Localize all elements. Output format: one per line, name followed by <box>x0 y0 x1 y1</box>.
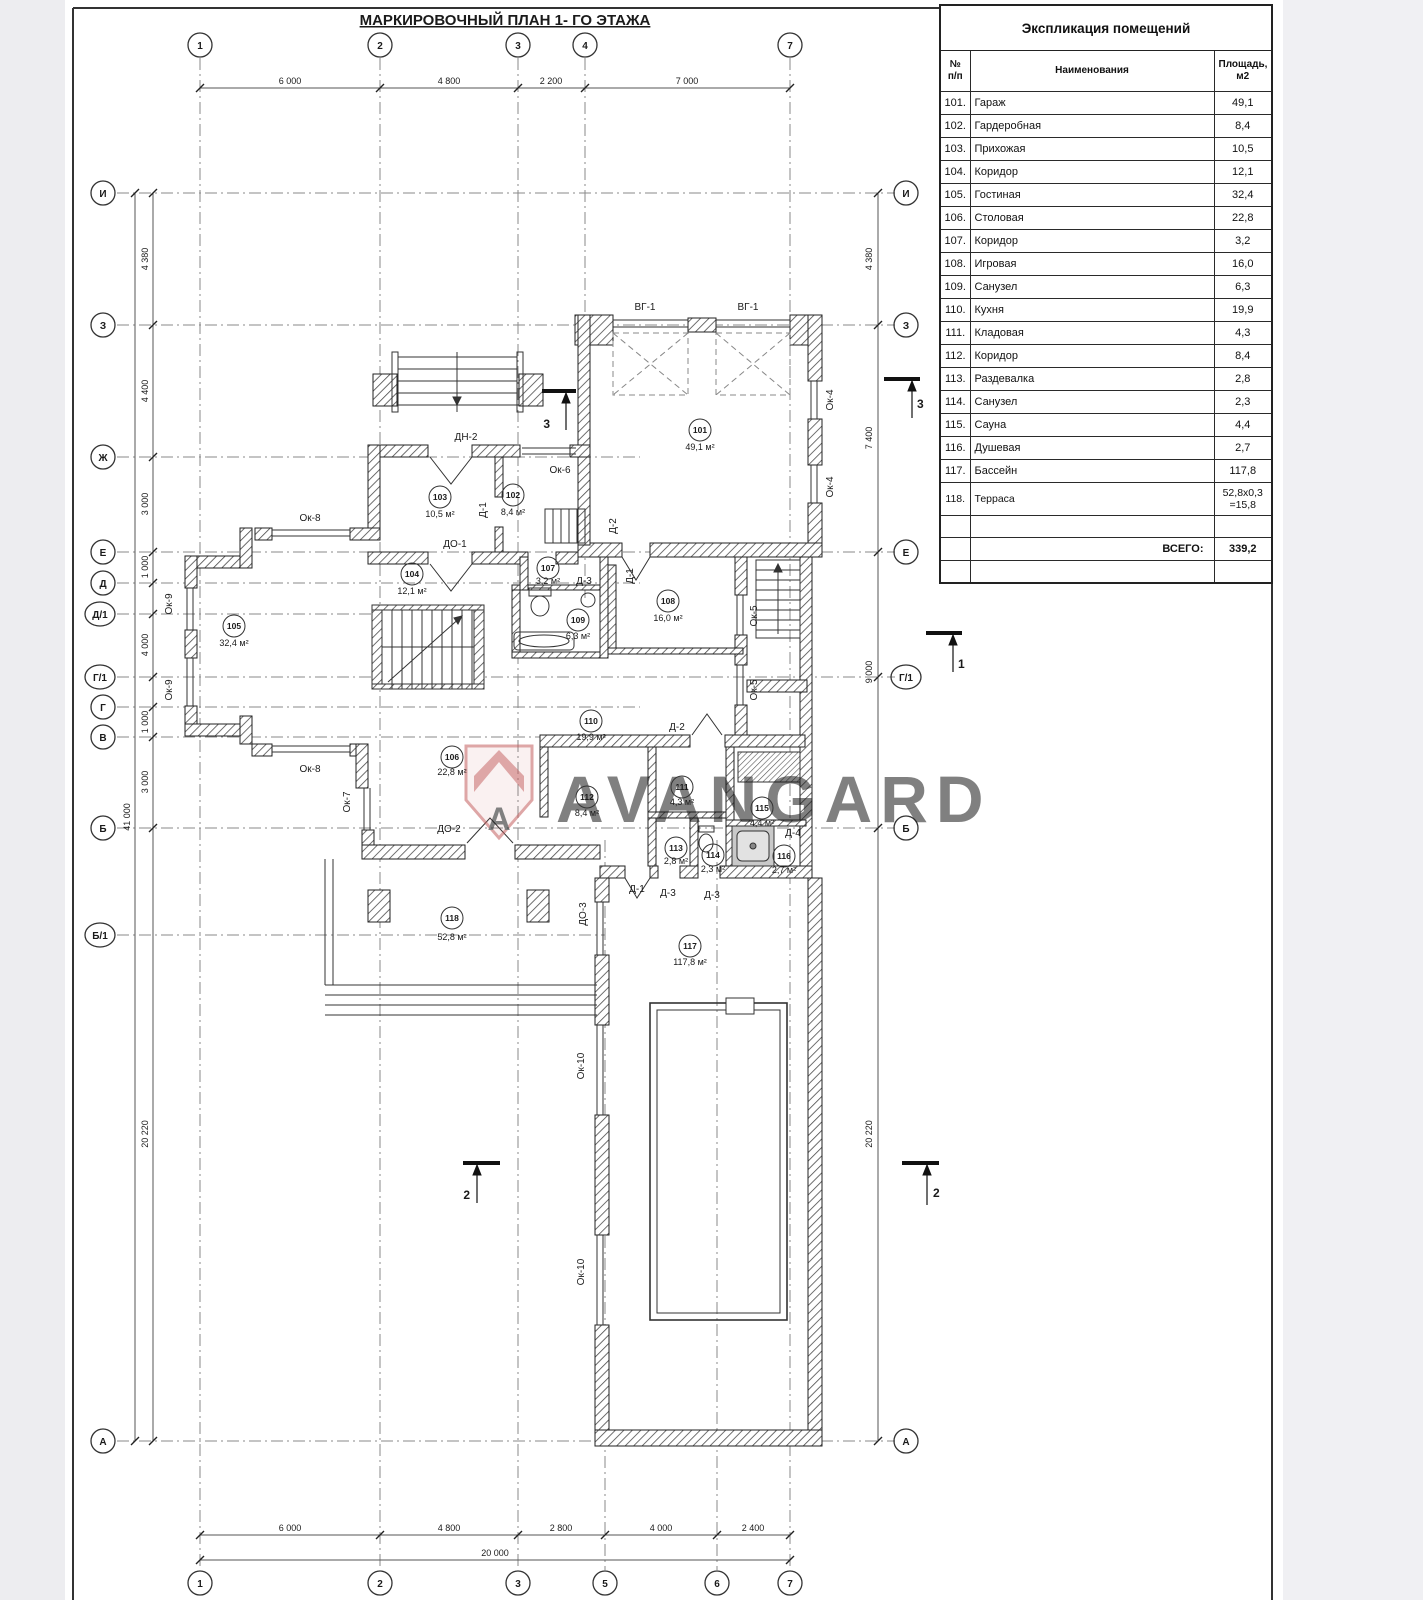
table-row: 111.Кладовая4,3 <box>940 322 1272 345</box>
label-door-d2-1: Д-2 <box>608 518 619 534</box>
dim-left-4: 1 000 <box>140 556 150 579</box>
table-row: 103.Прихожая10,5 <box>940 138 1272 161</box>
room-115-area: 4,4 м² <box>750 818 774 828</box>
axis-right-i: И <box>902 189 909 200</box>
label-door-d1-3: Д-1 <box>629 884 645 895</box>
table-row: 114.Санузел2,3 <box>940 391 1272 414</box>
table-row: 109.Санузел6,3 <box>940 276 1272 299</box>
room-104-area: 12,1 м² <box>397 586 426 596</box>
table-row: 110.Кухня19,9 <box>940 299 1272 322</box>
label-door-d3-3: Д-3 <box>704 890 720 901</box>
label-window-ok6: Ок-6 <box>549 465 570 476</box>
label-window-ok8-1: Ок-8 <box>299 513 320 524</box>
room-108-area: 16,0 м² <box>653 613 682 623</box>
table-row: 115.Сауна4,4 <box>940 414 1272 437</box>
label-window-ok4-2: Ок-4 <box>825 476 836 497</box>
axis-left-e: Е <box>100 548 107 559</box>
label-door-d3-1: Д-3 <box>576 576 592 587</box>
dim-left-2: 4 400 <box>140 380 150 403</box>
room-118-num: 118 <box>445 913 459 923</box>
dim-top-4: 7 000 <box>676 76 699 86</box>
axis-left-zh: Ж <box>97 453 108 464</box>
entry-porch-steps <box>392 352 523 412</box>
room-108-num: 108 <box>661 596 675 606</box>
axis-right-g1: Г/1 <box>899 673 913 684</box>
axis-left-i: И <box>99 189 106 200</box>
label-door-d3-2: Д-3 <box>660 888 676 899</box>
dim-bottom-1: 6 000 <box>279 1523 302 1533</box>
table-row: 117.Бассейн117,8 <box>940 460 1272 483</box>
svg-text:2: 2 <box>463 1188 470 1202</box>
room-103-area: 10,5 м² <box>425 509 454 519</box>
dim-left-1: 4 380 <box>140 248 150 271</box>
label-door-d1-1: Д-1 <box>478 502 489 518</box>
garage-door-symbols <box>613 333 790 395</box>
table-row: 108.Игровая16,0 <box>940 253 1272 276</box>
col-header-name: Наименования <box>970 51 1214 92</box>
label-door-d4: Д-4 <box>785 828 801 839</box>
room-106-area: 22,8 м² <box>437 767 466 777</box>
dim-left-total: 41 000 <box>122 803 132 831</box>
axis-right-a: А <box>902 1437 909 1448</box>
svg-text:3: 3 <box>543 417 550 431</box>
room-112-num: 112 <box>580 792 594 802</box>
svg-text:2: 2 <box>933 1186 940 1200</box>
room-111-area: 4,3 м² <box>670 797 694 807</box>
room-105-num: 105 <box>227 621 241 631</box>
main-staircase <box>372 605 484 689</box>
label-window-ok8-2: Ок-8 <box>299 764 320 775</box>
dim-bottom-4: 4 000 <box>650 1523 673 1533</box>
section-3-right: 3 <box>884 379 924 418</box>
table-row: 116.Душевая2,7 <box>940 437 1272 460</box>
axis-left-g: Г <box>100 703 106 714</box>
room-118-area: 52,8 м² <box>437 932 466 942</box>
label-door-do3: ДО-3 <box>578 902 589 926</box>
room-115-num: 115 <box>755 803 769 813</box>
pool <box>650 998 787 1320</box>
room-104-num: 104 <box>405 569 419 579</box>
total-value: 339,2 <box>1214 538 1272 561</box>
axis-bot-3: 3 <box>515 1579 521 1590</box>
dim-bottom-3: 2 800 <box>550 1523 573 1533</box>
walls-layer <box>185 315 822 1446</box>
table-row: 102.Гардеробная8,4 <box>940 115 1272 138</box>
room-116-area: 2,7 м² <box>772 865 796 875</box>
label-window-ok4-1: Ок-4 <box>825 389 836 410</box>
watermark-logo-letter: А <box>487 801 510 837</box>
axis-top-7: 7 <box>787 41 793 52</box>
axis-bot-6: 6 <box>714 1579 720 1590</box>
col-header-num: № п/п <box>940 51 970 92</box>
label-door-dn2: ДН-2 <box>455 432 478 443</box>
label-garage-door-2: ВГ-1 <box>738 302 759 313</box>
table-row: 112.Коридор8,4 <box>940 345 1272 368</box>
axis-left-z: З <box>100 321 106 332</box>
dim-bottom-total: 20 000 <box>481 1548 509 1558</box>
room-101-num: 101 <box>693 425 707 435</box>
dim-right-3: 9 000 <box>864 661 874 684</box>
room-113-num: 113 <box>669 843 683 853</box>
room-110-area: 19,9 м² <box>576 732 605 742</box>
axis-left-g1: Г/1 <box>93 673 107 684</box>
label-window-ok5-2: Ок-5 <box>749 679 760 700</box>
room-114-num: 114 <box>706 850 720 860</box>
label-window-ok10-1: Ок-10 <box>576 1052 587 1079</box>
axis-bot-5: 5 <box>602 1579 608 1590</box>
dim-top-1: 6 000 <box>279 76 302 86</box>
table-title: Экспликация помещений <box>940 5 1272 51</box>
room-112-area: 8,4 м² <box>575 808 599 818</box>
label-window-ok9-1: Ок-9 <box>164 593 175 614</box>
axis-bot-2: 2 <box>377 1579 383 1590</box>
dim-left-8: 20 220 <box>140 1120 150 1148</box>
plan-title: МАРКИРОВОЧНЫЙ ПЛАН 1- ГО ЭТАЖА <box>360 11 651 29</box>
room-103-num: 103 <box>433 492 447 502</box>
dim-left-6: 1 000 <box>140 711 150 734</box>
label-door-d2-2: Д-2 <box>669 722 685 733</box>
axis-left-d: Д <box>99 579 106 590</box>
dim-bottom-2: 4 800 <box>438 1523 461 1533</box>
table-total-row: ВСЕГО: 339,2 <box>940 538 1272 561</box>
table-row: 101.Гараж49,1 <box>940 92 1272 115</box>
label-window-ok7: Ок-7 <box>342 791 353 812</box>
explication-table: Экспликация помещений № п/п Наименования… <box>939 4 1273 584</box>
dim-right-4: 20 220 <box>864 1120 874 1148</box>
room-109-area: 6,3 м² <box>566 631 590 641</box>
axis-right-e: Е <box>903 548 910 559</box>
label-window-ok10-2: Ок-10 <box>576 1258 587 1285</box>
label-window-ok9-2: Ок-9 <box>164 679 175 700</box>
dim-left-5: 4 000 <box>140 634 150 657</box>
room-114-area: 2,3 м² <box>701 864 725 874</box>
dim-right-1: 4 380 <box>864 248 874 271</box>
table-row: 118.Терраса52,8х0,3 =15,8 <box>940 483 1272 516</box>
label-door-do2: ДО-2 <box>437 824 461 835</box>
section-3-top: 3 <box>542 391 576 431</box>
room-117-num: 117 <box>683 941 697 951</box>
room-markers: 101 102 103 104 105 106 107 108 109 110 … <box>219 419 796 967</box>
axis-bot-7: 7 <box>787 1579 793 1590</box>
room-102-area: 8,4 м² <box>501 507 525 517</box>
svg-text:1: 1 <box>958 657 965 671</box>
right-staircase <box>756 560 800 638</box>
room-101-area: 49,1 м² <box>685 442 714 452</box>
table-row: 104.Коридор12,1 <box>940 161 1272 184</box>
table-row: 113.Раздевалка2,8 <box>940 368 1272 391</box>
axis-top-2: 2 <box>377 41 383 52</box>
axis-left-a: А <box>99 1437 106 1448</box>
label-window-ok5-1: Ок-5 <box>749 605 760 626</box>
axis-left-v: В <box>99 733 106 744</box>
room-105-area: 32,4 м² <box>219 638 248 648</box>
drawing-sheet: МАРКИРОВОЧНЫЙ ПЛАН 1- ГО ЭТАЖА <box>0 0 1423 1600</box>
room-117-area: 117,8 м² <box>673 957 707 967</box>
dim-left-3: 3 000 <box>140 493 150 516</box>
section-1-right: 1 <box>926 633 965 672</box>
table-header-row: № п/п Наименования Площадь, м2 <box>940 51 1272 92</box>
dim-top-3: 2 200 <box>540 76 563 86</box>
table-row: 105.Гостиная32,4 <box>940 184 1272 207</box>
axis-top-3: 3 <box>515 41 521 52</box>
axis-left-d1: Д/1 <box>92 610 108 621</box>
label-door-d1-2: Д-1 <box>625 568 636 584</box>
room-109-num: 109 <box>571 615 585 625</box>
table-empty-row <box>940 561 1272 584</box>
table-empty-row <box>940 516 1272 538</box>
axis-right-z: З <box>903 321 909 332</box>
total-label: ВСЕГО: <box>970 538 1214 561</box>
table-row: 106.Столовая22,8 <box>940 207 1272 230</box>
svg-text:3: 3 <box>917 397 924 411</box>
section-2-bottom-right: 2 <box>902 1163 940 1205</box>
table-row: 107.Коридор3,2 <box>940 230 1272 253</box>
room-107-area: 3,2 м² <box>536 576 560 586</box>
dim-left-7: 3 000 <box>140 771 150 794</box>
axis-top-4: 4 <box>582 41 588 52</box>
section-2-bottom-left: 2 <box>463 1163 500 1203</box>
axis-left-b1: Б/1 <box>92 931 108 942</box>
room-102-num: 102 <box>506 490 520 500</box>
axis-bot-1: 1 <box>197 1579 203 1590</box>
room-107-num: 107 <box>541 563 555 573</box>
label-door-do1: ДО-1 <box>443 539 467 550</box>
room-116-num: 116 <box>777 851 791 861</box>
room-113-area: 2,8 м² <box>664 856 688 866</box>
room-110-num: 110 <box>584 716 598 726</box>
axis-left-b: Б <box>99 824 106 835</box>
room-111-num: 111 <box>675 782 689 792</box>
dim-top-2: 4 800 <box>438 76 461 86</box>
dim-right-2: 7 400 <box>864 427 874 450</box>
dim-bottom-5: 2 400 <box>742 1523 765 1533</box>
axis-top-1: 1 <box>197 41 203 52</box>
room-106-num: 106 <box>445 752 459 762</box>
label-garage-door-1: ВГ-1 <box>635 302 656 313</box>
col-header-area: Площадь, м2 <box>1214 51 1272 92</box>
